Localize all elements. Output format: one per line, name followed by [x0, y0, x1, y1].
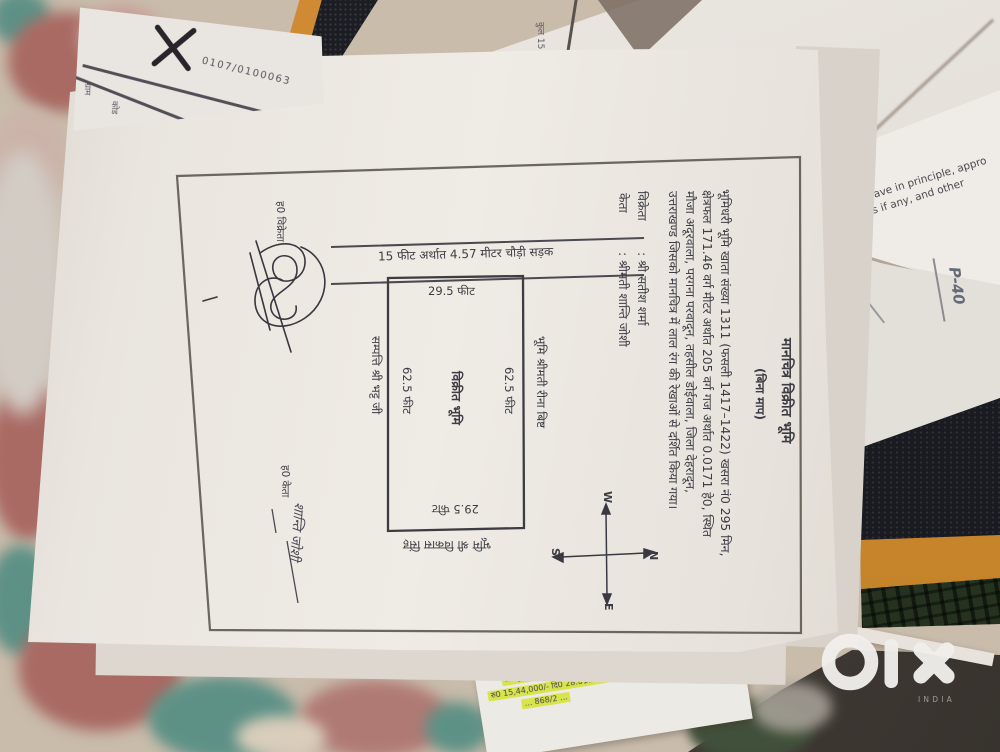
plot-left-length: 62.5 फीट [400, 367, 413, 414]
body-line-1: भूमिधरी भूमि खाता संख्या 1311 (फसली 1417… [717, 189, 731, 556]
olx-logo: INDIA [822, 630, 972, 710]
body-line-4: उत्तराखण्ड जिसको मानचित्र में लाल रंग की… [665, 191, 679, 509]
seller-signature-scribble [203, 241, 325, 352]
olx-watermark: INDIA [822, 630, 972, 714]
x-mark-scribble [143, 16, 204, 77]
compass-east: E [602, 603, 614, 611]
neighbor-left: सम्पत्ति श्री भट्ट जी [369, 336, 382, 414]
receipt-fragment: कोड [108, 101, 118, 115]
plot-top-length: 29.5 फीट [428, 285, 475, 298]
compass-north: N [647, 551, 659, 560]
plot-right-length: 62.5 फीट [502, 367, 515, 414]
document-title: मानचित्र विक्रीत भूमि [777, 338, 793, 443]
plot-bottom-length: 29.5 फीट [432, 502, 479, 515]
buyer-signature-label: ह0 केता [278, 465, 290, 497]
compass-west: W [601, 491, 613, 503]
buyer-label: केता [615, 193, 629, 213]
document-subtitle: (बिना माप) [753, 368, 766, 420]
olx-letter-x [910, 639, 957, 686]
buyer-name: : श्रीमती शान्ति जोशी [615, 252, 629, 347]
compass-south: S [549, 548, 561, 556]
olx-letter-l [885, 639, 899, 688]
receipt-number: 0107/0100063 [201, 56, 292, 88]
neighbor-bottom: भूमि श्री विकास सिंह [403, 538, 491, 551]
neighbor-right: भूमि श्रीमती रीना बिष्ट [534, 336, 547, 428]
seller-label: विक्रेता [634, 191, 648, 221]
seller-name: : श्री सतीश शर्मा [634, 252, 648, 326]
plot-center-label: विक्रीत भूमि [449, 371, 463, 425]
olx-country-text: INDIA [918, 695, 955, 704]
receipt-fragment: ग्राम [81, 83, 91, 95]
seller-signature-label: ह0 विक्रेता [273, 201, 285, 242]
body-line-2: क्षेत्रफल 171.46 वर्ग मीटर अर्थात 205 वर… [699, 190, 713, 537]
olx-letter-o [829, 641, 872, 684]
body-line-3: मौजा अदूरवाला, परगना परवादून, तहसील डोईव… [682, 191, 696, 493]
compass-rose [553, 504, 654, 604]
photo-of-land-map-document: कुल 15 have in principle, appro ns if an… [0, 0, 1000, 752]
